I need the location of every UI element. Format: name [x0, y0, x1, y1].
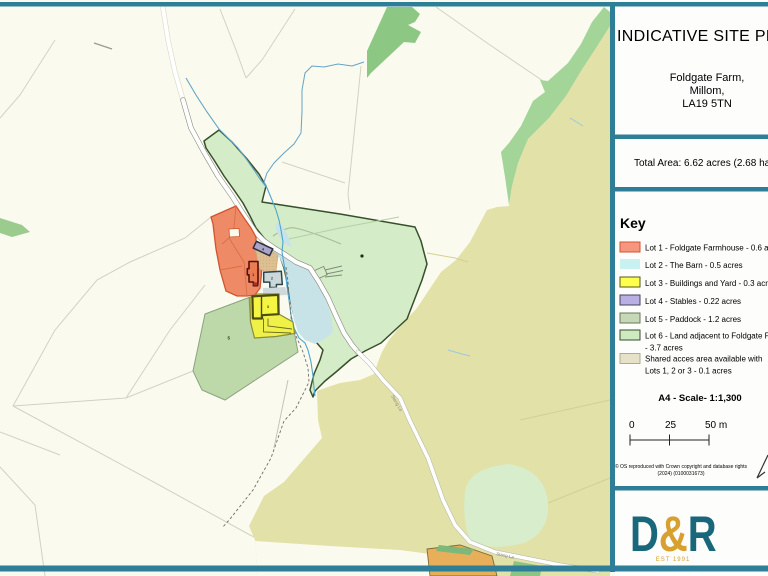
svg-text:0: 0 — [629, 420, 635, 431]
svg-text:Foldgate Farm,: Foldgate Farm, — [670, 72, 745, 84]
svg-text:1: 1 — [252, 273, 254, 277]
svg-text:Millom,: Millom, — [690, 85, 725, 97]
svg-text:Lot 1 - Foldgate Farmhouse - 0: Lot 1 - Foldgate Farmhouse - 0.6 ac — [645, 244, 768, 253]
svg-text:4: 4 — [262, 248, 264, 252]
svg-text:LA19 5TN: LA19 5TN — [682, 98, 732, 110]
svg-text:Lot 3 - Buildings and Yard - 0: Lot 3 - Buildings and Yard - 0.3 acr — [645, 279, 768, 288]
svg-text:2: 2 — [271, 277, 273, 281]
svg-text:50 m: 50 m — [705, 420, 727, 431]
svg-text:D&R: D&R — [630, 506, 717, 562]
svg-text:Key: Key — [620, 215, 646, 231]
svg-text:Lot 4 - Stables - 0.22 acres: Lot 4 - Stables - 0.22 acres — [645, 297, 741, 306]
svg-text:A4 - Scale- 1:1,300: A4 - Scale- 1:1,300 — [658, 393, 741, 404]
svg-text:Lot 6 - Land adjacent to Foldg: Lot 6 - Land adjacent to Foldgate F — [645, 332, 768, 341]
svg-text:EST 1991: EST 1991 — [656, 557, 691, 563]
svg-text:Lot 5 - Paddock - 1.2 acres: Lot 5 - Paddock - 1.2 acres — [645, 315, 741, 324]
svg-text:© OS reproduced with Crown cop: © OS reproduced with Crown copyright and… — [615, 463, 748, 470]
svg-text:(2024) (0100031673): (2024) (0100031673) — [658, 471, 705, 477]
svg-text:Lots 1, 2 or 3 - 0.1 acres: Lots 1, 2 or 3 - 0.1 acres — [645, 367, 732, 376]
svg-text:Lot 2 - The Barn - 0.5 acres: Lot 2 - The Barn - 0.5 acres — [645, 261, 743, 270]
svg-text:Shared acces area available wi: Shared acces area available with — [645, 355, 762, 364]
svg-text:Total Area: 6.62 acres (2.68 h: Total Area: 6.62 acres (2.68 ha — [634, 158, 768, 169]
svg-text:- 3.7 acres: - 3.7 acres — [645, 344, 683, 353]
svg-text:INDICATIVE SITE PLAN: INDICATIVE SITE PLAN — [617, 28, 768, 45]
svg-text:3: 3 — [267, 305, 269, 309]
svg-text:25: 25 — [665, 420, 677, 431]
